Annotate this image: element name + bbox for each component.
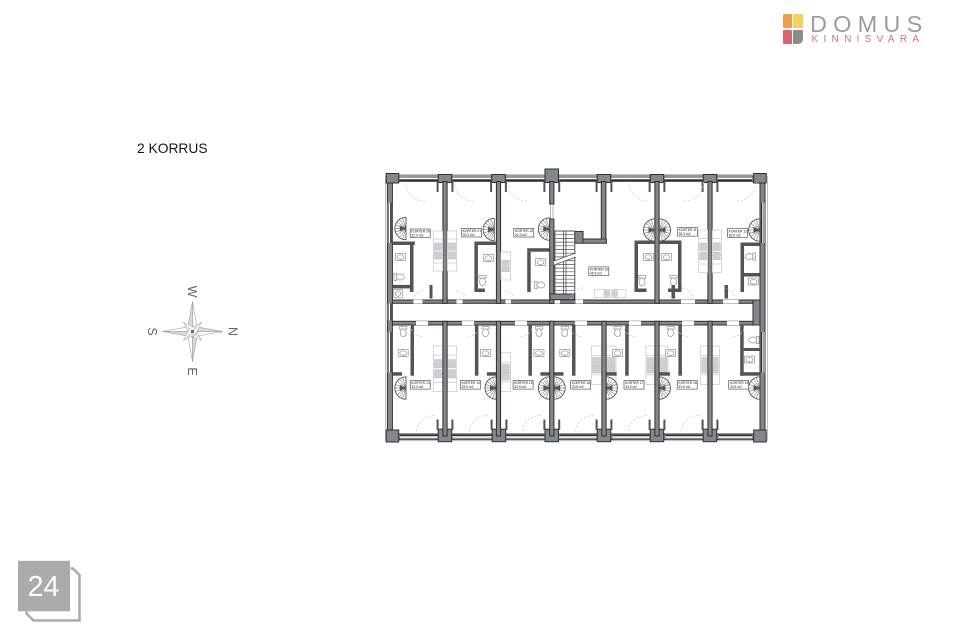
svg-text:32.3 m2: 32.3 m2	[515, 233, 527, 237]
svg-text:33.5 m2: 33.5 m2	[572, 385, 584, 389]
svg-text:33.4 m2: 33.4 m2	[411, 385, 423, 389]
svg-text:33.5 m2: 33.5 m2	[462, 385, 474, 389]
svg-text:52.6 m2: 52.6 m2	[729, 233, 741, 237]
svg-text:33.6 m2: 33.6 m2	[730, 385, 742, 389]
svg-text:33.5 m2: 33.5 m2	[514, 385, 526, 389]
svg-text:22.4 m2: 22.4 m2	[411, 234, 423, 238]
svg-text:45.6 m2: 45.6 m2	[590, 272, 602, 276]
svg-text:52.3 m2: 52.3 m2	[679, 232, 691, 236]
svg-text:33.5 m2: 33.5 m2	[625, 385, 637, 389]
svg-text:33.5 m2: 33.5 m2	[678, 385, 690, 389]
svg-text:32.3 m2: 32.3 m2	[463, 233, 475, 237]
